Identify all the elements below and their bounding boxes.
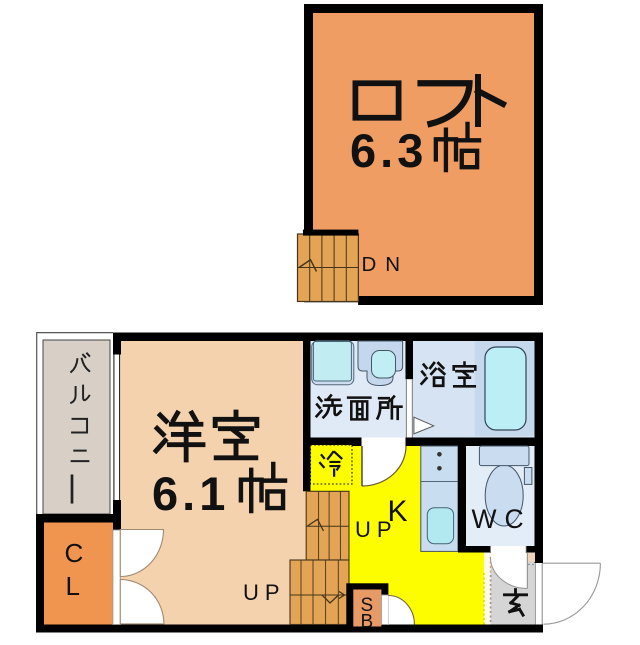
svg-text:DN: DN: [362, 253, 410, 276]
svg-text:6.1: 6.1: [152, 467, 229, 520]
svg-text:B: B: [361, 612, 374, 633]
svg-text:WC: WC: [472, 504, 532, 534]
svg-text:UP: UP: [243, 580, 286, 605]
svg-text:UP: UP: [355, 517, 398, 542]
svg-text:L: L: [66, 571, 80, 601]
svg-text:C: C: [65, 538, 84, 568]
svg-text:6.3: 6.3: [350, 124, 427, 177]
